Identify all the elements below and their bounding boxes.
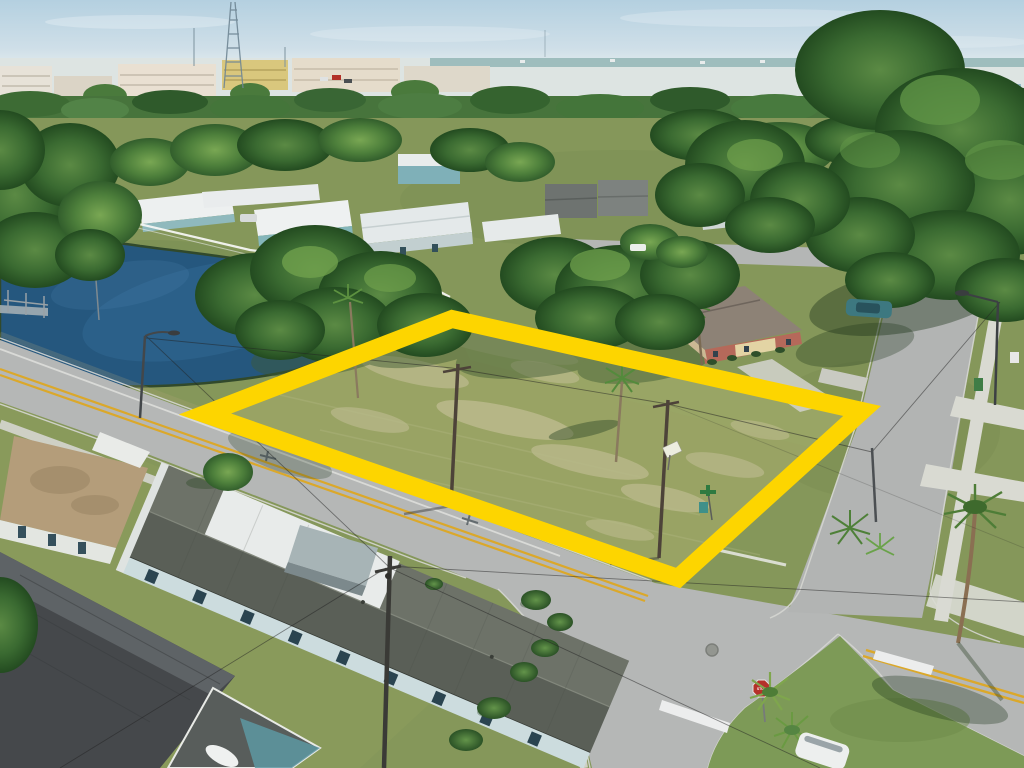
utility-box: [1010, 352, 1019, 363]
teal-car: [845, 298, 892, 318]
street-light-head: [955, 290, 969, 296]
aerial-photo: STOP: [0, 0, 1024, 768]
trash-bin-green: [974, 378, 983, 391]
gray-duplex: [545, 180, 648, 218]
scene-canvas: STOP: [0, 0, 1024, 768]
silver-car: [240, 214, 257, 222]
recycle-bin: [699, 502, 708, 513]
white-car-midground: [630, 244, 646, 251]
street-light-head: [168, 331, 180, 336]
manhole-cover: [706, 644, 718, 656]
red-car: [332, 75, 341, 80]
